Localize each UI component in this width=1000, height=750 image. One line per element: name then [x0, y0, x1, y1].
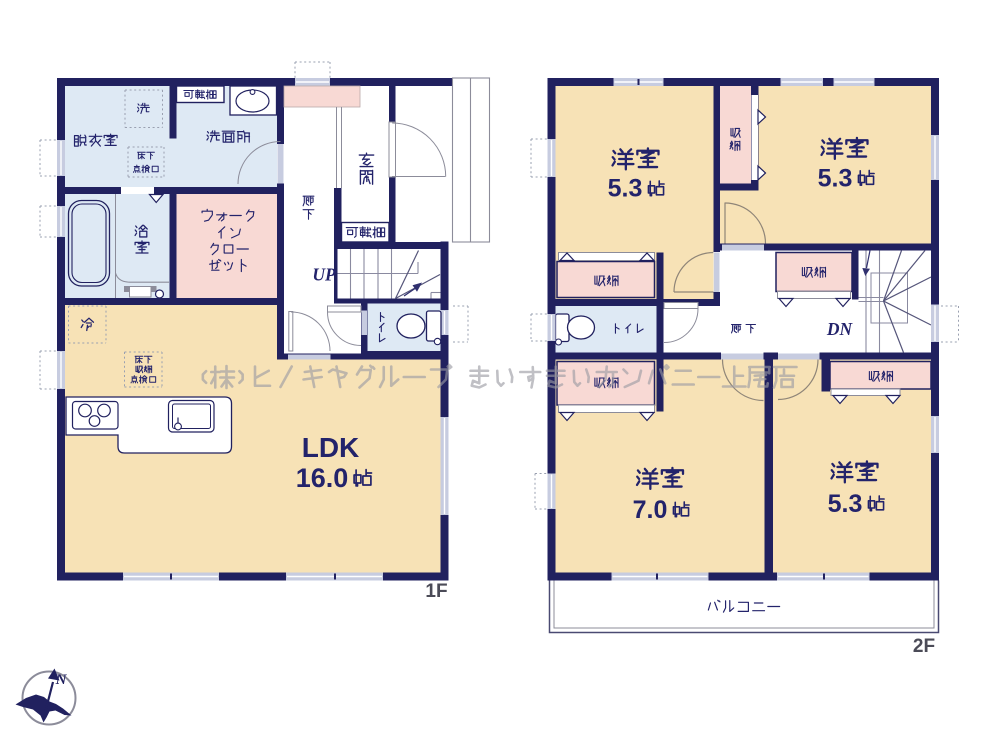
- svg-text:5.3: 5.3: [608, 175, 643, 203]
- svg-text:N: N: [55, 672, 68, 688]
- svg-text:2F: 2F: [913, 636, 935, 657]
- svg-text:7.0: 7.0: [633, 496, 668, 524]
- svg-text:16.0: 16.0: [296, 463, 349, 493]
- svg-text:UP: UP: [312, 265, 336, 285]
- svg-text:LDK: LDK: [302, 432, 360, 463]
- svg-text:5.3: 5.3: [828, 490, 863, 518]
- svg-text:5.3: 5.3: [818, 165, 853, 193]
- svg-text:1F: 1F: [425, 581, 447, 602]
- svg-text:DN: DN: [826, 319, 854, 339]
